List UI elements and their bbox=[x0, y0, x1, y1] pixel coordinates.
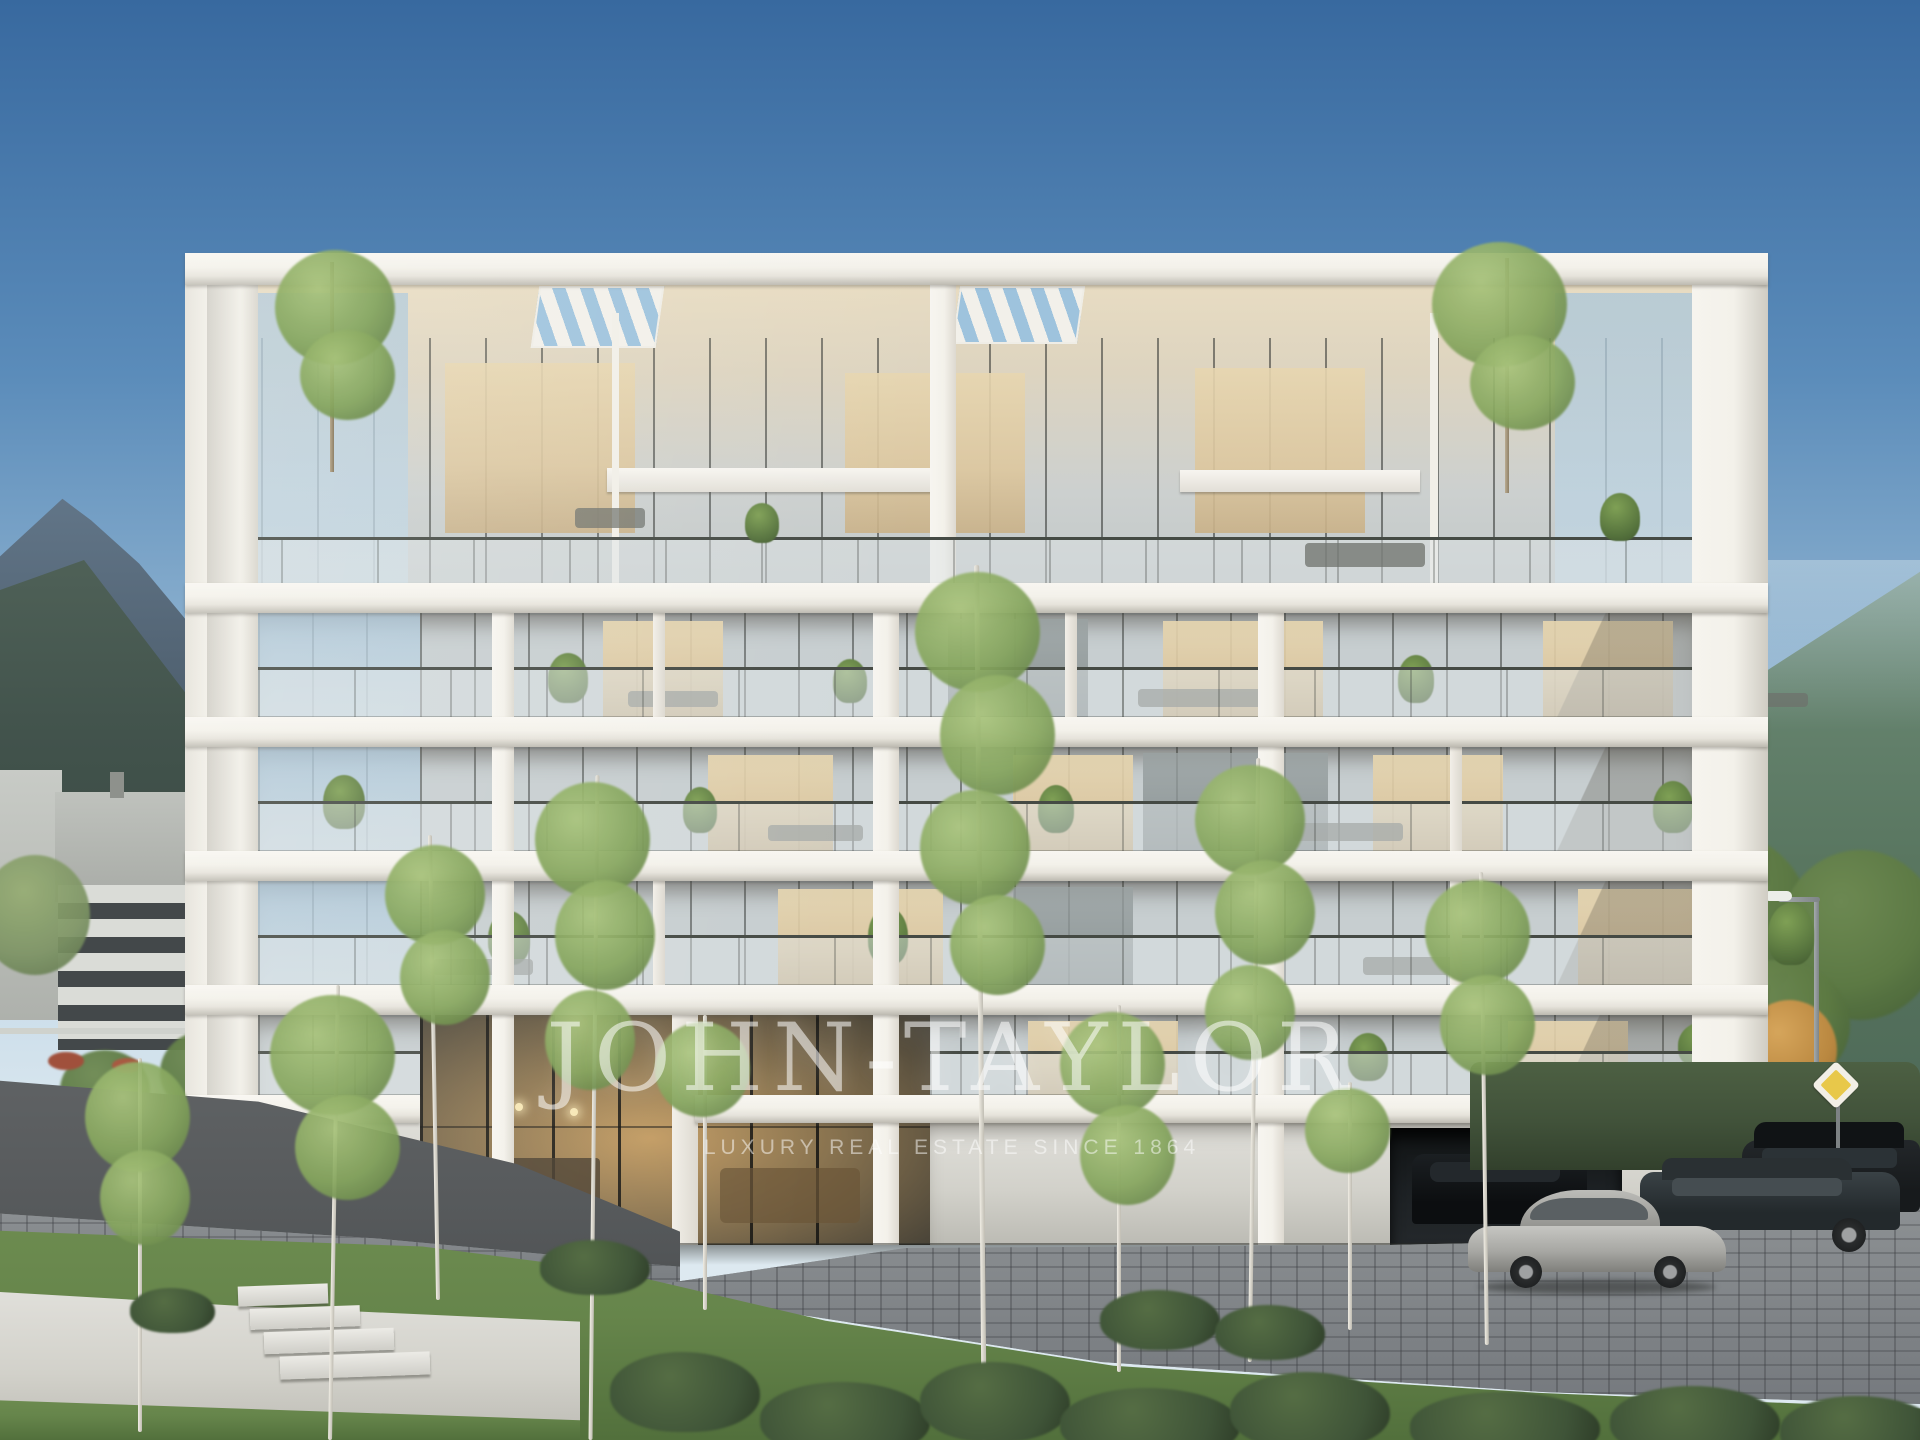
bush bbox=[540, 1240, 650, 1295]
balcony-plant bbox=[745, 503, 779, 543]
facade-pillar bbox=[492, 583, 514, 1245]
terrace-parapet-beam bbox=[607, 468, 933, 492]
terrace-furniture bbox=[1305, 543, 1425, 567]
terrace-furniture bbox=[575, 508, 645, 528]
suv-roof bbox=[1754, 1122, 1904, 1148]
architectural-rendering-scene: JOHN-TAYLOR LUXURY REAL ESTATE SINCE 186… bbox=[0, 0, 1920, 1440]
birch-canopy bbox=[920, 790, 1030, 905]
birch-canopy bbox=[555, 880, 655, 990]
balcony-plant bbox=[1600, 493, 1640, 541]
bush bbox=[1215, 1305, 1325, 1360]
birch-canopy bbox=[535, 782, 650, 897]
fence-line bbox=[0, 1028, 190, 1034]
watermark: JOHN-TAYLOR LUXURY REAL ESTATE SINCE 186… bbox=[546, 1012, 1357, 1160]
wheel bbox=[1654, 1256, 1686, 1288]
pendant-light bbox=[515, 1103, 523, 1111]
wheel bbox=[1510, 1256, 1542, 1288]
birch-canopy bbox=[950, 895, 1045, 995]
watermark-title: JOHN-TAYLOR bbox=[546, 1012, 1357, 1106]
birch-canopy bbox=[295, 1095, 400, 1200]
bush bbox=[920, 1362, 1070, 1440]
red-flower-bush bbox=[48, 1052, 84, 1070]
facade-post bbox=[1450, 747, 1462, 851]
oculus-tree-canopy bbox=[1470, 335, 1575, 430]
street-lamp-head bbox=[1764, 891, 1792, 901]
terrace-parapet-beam bbox=[1180, 470, 1420, 492]
birch-canopy bbox=[1425, 880, 1530, 985]
birch-canopy bbox=[940, 675, 1055, 795]
bush bbox=[610, 1352, 760, 1432]
facade-post bbox=[1065, 613, 1077, 717]
stair-step bbox=[250, 1305, 361, 1330]
balcony-plant bbox=[1768, 903, 1814, 965]
stair-step bbox=[238, 1283, 329, 1306]
birch-canopy bbox=[1440, 975, 1535, 1075]
sedan-windows bbox=[1530, 1198, 1648, 1220]
bush bbox=[130, 1288, 215, 1333]
roof-slat-skylight bbox=[952, 286, 1085, 344]
sign-face bbox=[1820, 1069, 1851, 1100]
birch-canopy bbox=[1195, 765, 1305, 875]
bush bbox=[1100, 1290, 1220, 1350]
birch-canopy bbox=[400, 930, 490, 1025]
oculus-tree-canopy bbox=[300, 330, 395, 420]
birch-canopy bbox=[915, 572, 1040, 692]
wagon-roof bbox=[1662, 1158, 1852, 1180]
watermark-tagline: LUXURY REAL ESTATE SINCE 1864 bbox=[546, 1136, 1357, 1160]
penthouse-lit-window bbox=[1195, 368, 1365, 533]
birch-canopy bbox=[1215, 860, 1315, 965]
facade-post bbox=[653, 613, 665, 717]
roof-slat-skylight bbox=[531, 286, 665, 348]
chimney bbox=[110, 772, 124, 798]
sedan-body bbox=[1468, 1226, 1726, 1272]
silver-sedan bbox=[1468, 1190, 1726, 1294]
lobby-sofa bbox=[720, 1168, 860, 1223]
birch-canopy bbox=[100, 1150, 190, 1245]
wheel bbox=[1832, 1218, 1866, 1252]
